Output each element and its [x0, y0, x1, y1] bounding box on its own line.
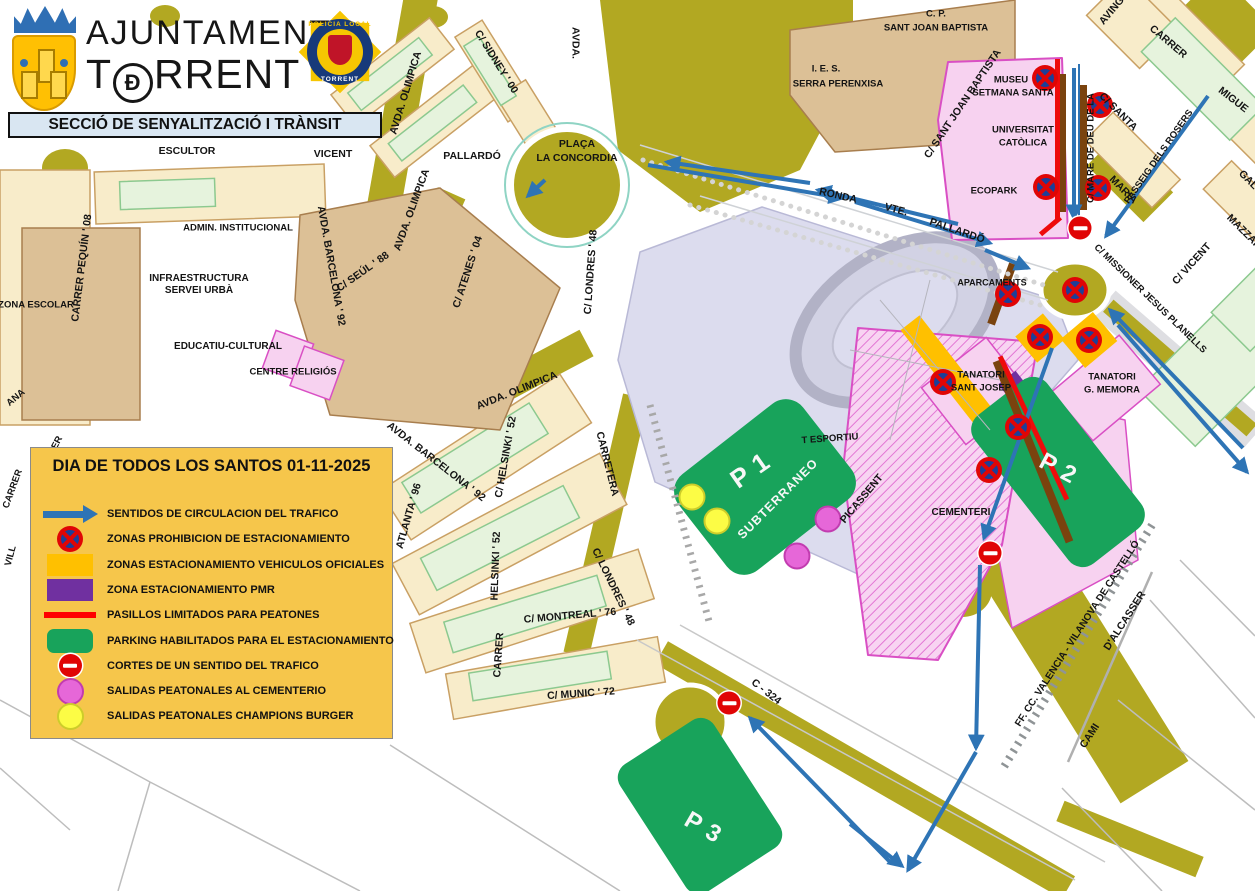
- legend-row-red-line: PASILLOS LIMITADOS PARA PEATONES: [31, 602, 392, 628]
- map-label: C/ LONDRES ' 48: [583, 229, 599, 314]
- map-label: C - 324: [749, 677, 783, 706]
- map-label: MAZZAR: [1225, 213, 1255, 252]
- map-label: D'ALCASSER: [1102, 590, 1148, 653]
- legend-row-yellow-dot: SALIDAS PEATONALES CHAMPIONS BURGER: [31, 703, 392, 729]
- map-label: CARRER: [2, 468, 25, 509]
- red-line-icon: [39, 602, 101, 628]
- map-label: SERRA PERENXISA: [793, 79, 883, 89]
- map-label: MUSEU: [994, 75, 1028, 85]
- badge-bottom-text: TORRENT: [292, 76, 388, 83]
- cemetery-exit-dot: [815, 506, 842, 533]
- map-label: P 3: [680, 808, 725, 848]
- yellow-dot-icon: [39, 703, 101, 729]
- map-label: GAL: [1236, 168, 1255, 191]
- champions-burger-exit-dot: [679, 484, 706, 511]
- badge-shield-icon: [328, 35, 352, 65]
- no-entry-sign: [979, 542, 1002, 565]
- green-parking-icon: [39, 628, 101, 654]
- map-label: CARRETERA: [594, 431, 620, 498]
- map-label: PALLARDÓ: [928, 217, 986, 246]
- map-label: ATLANTA ' 96: [395, 482, 424, 550]
- org-line2-right: RRENT: [154, 51, 300, 97]
- map-label: T ESPORTIU: [801, 432, 859, 445]
- no-parking-sign: [1076, 327, 1102, 353]
- legend-row-no-entry-sign: CORTES DE UN SENTIDO DEL TRAFICO: [31, 653, 392, 679]
- map-label: C/ HELSINKI ' 52: [494, 415, 519, 498]
- map-label: ZONA ESCOLAR: [0, 300, 74, 310]
- no-entry-sign-icon: [39, 653, 101, 679]
- map-label: AVDA. OLIMPICA: [392, 168, 431, 253]
- map-label: PALLARDÓ: [443, 151, 501, 162]
- map-label: C/ SANT JOAN BAPTISTA: [923, 48, 1004, 161]
- section-banner: SECCIÓ DE SENYALITZACIÓ I TRÀNSIT: [8, 112, 382, 138]
- map-label: C/ VICENT: [1171, 241, 1214, 287]
- map-label: ADMIN. INSTITUCIONAL: [183, 223, 293, 233]
- shield-dot-icon: [20, 59, 28, 67]
- legend-row-no-parking-sign: ZONAS PROHIBICION DE ESTACIONAMIENTO: [31, 526, 392, 552]
- no-parking-sign: [1027, 324, 1053, 350]
- map-label: CARRER: [1147, 24, 1188, 61]
- shield-tower-icon: [21, 71, 38, 99]
- map-label: P 2: [1035, 449, 1080, 488]
- map-label: C/ MARE DE DEU DE LA: [1086, 93, 1096, 203]
- map-legend: DIA DE TODOS LOS SANTOS 01-11-2025 SENTI…: [30, 447, 393, 739]
- map-label: AVDA. OLIMPICA: [475, 370, 559, 412]
- torrent-o-d-icon: Ð: [113, 63, 153, 103]
- map-label: ANA: [5, 388, 27, 409]
- legend-label: PASILLOS LIMITADOS PARA PEATONES: [107, 609, 319, 621]
- magenta-dot-icon: [39, 678, 101, 704]
- map-label: ESCULTOR: [159, 146, 216, 157]
- purple-zone-icon: [39, 577, 101, 603]
- map-label: LA CONCORDIA: [536, 153, 617, 164]
- map-label: VICENT: [314, 149, 353, 160]
- legend-row-purple-zone: ZONA ESTACIONAMIENTO PMR: [31, 577, 392, 603]
- map-label: G. MEMORA: [1084, 385, 1140, 395]
- no-parking-sign: [1062, 277, 1088, 303]
- legend-label: SALIDAS PEATONALES AL CEMENTERIO: [107, 685, 326, 697]
- legend-title: DIA DE TODOS LOS SANTOS 01-11-2025: [31, 457, 392, 476]
- map-label: C/ MUNIC ' 72: [547, 686, 615, 701]
- map-label: AVDA. OLIMPICA: [388, 50, 423, 135]
- no-parking-sign-icon: [39, 526, 101, 552]
- map-label: CEMENTERI: [932, 508, 991, 518]
- map-label: EDUCATIU-CULTURAL: [174, 342, 282, 352]
- map-label: CATÒLICA: [999, 138, 1047, 148]
- map-label: C/ ATENES ' 04: [451, 235, 484, 309]
- map-label: P 1: [726, 447, 775, 492]
- map-label: HELSINKI ' 52: [490, 531, 503, 600]
- map-label: C/ MONTREAL ' 76: [523, 607, 616, 626]
- no-parking-sign: [1033, 174, 1059, 200]
- map-label: C. P.: [926, 9, 946, 19]
- map-label: SETMANA SANTA: [972, 88, 1053, 98]
- no-parking-sign: [1005, 414, 1031, 440]
- orange-zone-icon: [39, 552, 101, 578]
- no-entry-sign: [1069, 217, 1092, 240]
- legend-label: PARKING HABILITADOS PARA EL ESTACIONAMIE…: [107, 635, 394, 647]
- map-label: PICASSENT: [839, 473, 886, 526]
- legend-label: ZONAS PROHIBICION DE ESTACIONAMIENTO: [107, 533, 350, 545]
- map-label: C/ SEÚL ' 88: [335, 250, 391, 294]
- shield-tower-icon: [50, 71, 67, 99]
- map-label: VTE.: [883, 202, 908, 218]
- legend-row-green-parking: PARKING HABILITADOS PARA EL ESTACIONAMIE…: [31, 628, 392, 654]
- traffic-arrow-icon: [39, 501, 101, 527]
- no-entry-sign: [718, 692, 741, 715]
- legend-label: ZONAS ESTACIONAMIENTO VEHICULOS OFICIALE…: [107, 559, 384, 571]
- map-label: CENTRE RELIGIÓS: [249, 367, 336, 377]
- map-label: CARRER: [492, 632, 506, 678]
- map-label: AVDA. BARCELONA ' 92: [315, 205, 346, 326]
- map-label: PLAÇA: [559, 139, 595, 150]
- map-label: SERVEI URBÀ: [165, 286, 233, 296]
- legend-row-magenta-dot: SALIDAS PEATONALES AL CEMENTERIO: [31, 678, 392, 704]
- map-label: RONDA: [818, 187, 858, 206]
- map-label: TANATORI: [957, 370, 1005, 380]
- map-label: APARCAMENTS: [957, 279, 1026, 288]
- map-label: AVDA. BARCELONA ' 92: [385, 420, 487, 503]
- map-label: UNIVERSITAT: [992, 125, 1054, 135]
- no-parking-sign: [976, 457, 1002, 483]
- map-label: SANT JOAN BAPTISTA: [884, 23, 988, 33]
- map-label: INFRAESTRUCTURA: [149, 274, 248, 284]
- shield-dot-icon: [60, 59, 68, 67]
- map-label: TANATORI: [1088, 372, 1136, 382]
- legend-row-orange-zone: ZONAS ESTACIONAMIENTO VEHICULOS OFICIALE…: [31, 552, 392, 578]
- map-label: MIGUE: [1216, 85, 1250, 114]
- legend-label: ZONA ESTACIONAMIENTO PMR: [107, 584, 275, 596]
- map-label: AVDA.: [570, 27, 581, 59]
- cemetery-exit-dot: [784, 543, 811, 570]
- legend-label: SENTIDOS DE CIRCULACION DEL TRAFICO: [107, 508, 338, 520]
- champions-burger-exit-dot: [704, 508, 731, 535]
- badge-top-text: POLICIA LOCAL: [292, 21, 388, 28]
- map-label: AVING: [1098, 0, 1127, 27]
- map-label: SANT JOSEP: [951, 383, 1011, 393]
- legend-label: SALIDAS PEATONALES CHAMPIONS BURGER: [107, 710, 354, 722]
- traffic-plan-map: ESCULTORVICENTCARRER PEQUÍN ' 08ZONA ESC…: [0, 0, 1255, 891]
- legend-row-traffic-arrow: SENTIDOS DE CIRCULACION DEL TRAFICO: [31, 501, 392, 527]
- police-badge: POLICIA LOCAL TORRENT: [292, 4, 388, 100]
- map-label: I. E. S.: [812, 64, 841, 74]
- map-label: ECOPARK: [971, 186, 1018, 196]
- org-line2-left: T: [86, 51, 112, 97]
- map-label: C/ SIDNEY ' 00: [472, 29, 519, 96]
- map-label: CAMI: [1078, 722, 1101, 750]
- map-label: VILL: [4, 545, 19, 567]
- legend-label: CORTES DE UN SENTIDO DEL TRAFICO: [107, 660, 319, 672]
